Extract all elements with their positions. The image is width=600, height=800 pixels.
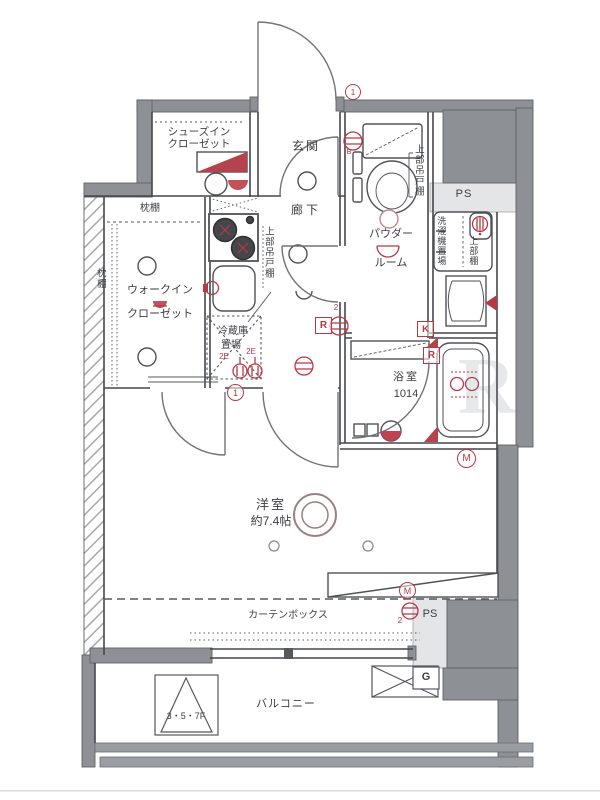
corridor-light <box>289 245 307 263</box>
powder-room-symbol <box>377 246 399 257</box>
bathroom-r-mark: R <box>423 347 440 364</box>
entrance-light <box>298 172 316 190</box>
room-label-shoes-closet: クローゼット <box>168 138 231 150</box>
bedroom-ceiling-light <box>294 494 336 536</box>
outlet-2e-right: 2E <box>246 347 256 356</box>
fixture-label-pillow-shelf: 枕棚 <box>140 203 160 215</box>
fixture-label-refrigerator: 置場 <box>221 340 241 352</box>
hatched-wall <box>84 197 104 655</box>
pipe-shaft-label-bottom: PS <box>423 608 438 621</box>
room-label-powder-room: パウダー <box>369 228 413 241</box>
room-label-powder-room: ルーム <box>375 257 408 270</box>
bedroom-m-mark: M <box>399 582 416 599</box>
vanity <box>446 276 486 326</box>
fixture-label-pillow-shelf-side: 枕棚 <box>94 268 105 289</box>
evacuation-hatch-label: 3・5・7F <box>167 711 206 721</box>
wic-light <box>138 257 156 275</box>
toilet-b-mark: B <box>346 148 351 157</box>
room-label-bedroom: 洋室 <box>256 498 286 513</box>
pipe-shaft-label-top: PS <box>456 188 473 201</box>
vanity-faucet <box>485 295 497 311</box>
powder-room-light <box>380 210 398 228</box>
red-half-circle <box>228 180 248 190</box>
room-label-balcony: バルコニー <box>256 698 316 711</box>
watermark-letter: R <box>458 342 516 433</box>
stove-knob <box>247 217 254 224</box>
kitchen-k-mark: K <box>417 321 434 337</box>
room-label-shoes-closet: シューズイン <box>168 126 230 138</box>
room-label-bedroom-size: 約7.4帖 <box>251 515 292 529</box>
fixture-label-refrigerator: 冷蔵庫 <box>218 326 248 338</box>
room-label-walk-in-closet: ウォークイン <box>127 284 193 297</box>
basin-red-half <box>381 431 401 441</box>
kitchen-circled-one: 1 <box>227 384 244 401</box>
fixture-label-washing-machine: 洗濯機置場 <box>436 216 446 266</box>
fridge-outlets <box>233 357 262 378</box>
kitchen-sink <box>213 266 255 311</box>
fixture-label-upper-shelf: 上部棚 <box>468 236 478 266</box>
shoes-closet-light <box>205 173 227 195</box>
corridor-r-mark: R <box>315 317 332 334</box>
room-label-bathroom-size: 1014 <box>394 388 418 401</box>
corridor-outlet <box>295 357 313 375</box>
corridor-two-mark: 2 <box>334 303 338 312</box>
gas-meter-label: G <box>422 671 431 684</box>
window-mullion <box>284 648 293 659</box>
balcony-rails <box>95 743 533 767</box>
wic-door-arc <box>162 392 225 455</box>
fixture-label-upper-cabinet-kitchen: 上部吊戸棚 <box>262 226 273 279</box>
bath-corner-wedge <box>424 426 438 442</box>
wic-light <box>138 348 156 366</box>
bathroom-m-mark: M <box>457 449 476 468</box>
photo-edge-line <box>0 790 600 792</box>
bedroom-door-arc <box>263 392 338 467</box>
room-label-corridor: 廊下 <box>291 204 321 218</box>
fixture-label-upper-cabinet-toilet: 上部吊戸棚 <box>412 144 423 197</box>
bedroom-two-mark: 2 <box>398 616 402 625</box>
floor-plan: シューズイン クローゼット 玄関 廊下 パウダー ルーム ウォークイン クローゼ… <box>0 0 600 800</box>
outlet-2e-left: 2E <box>219 352 229 361</box>
room-label-bathroom: 浴室 <box>393 371 419 384</box>
room-label-walk-in-closet: クローゼット <box>127 308 193 321</box>
fixture-label-curtain-box: カーテンボックス <box>248 610 328 622</box>
room-label-entrance: 玄関 <box>292 140 320 154</box>
entrance-circled-one: 1 <box>345 84 361 100</box>
wic-symbol <box>153 301 167 308</box>
entrance-door-arc <box>258 22 336 100</box>
door-arcs <box>162 22 429 467</box>
